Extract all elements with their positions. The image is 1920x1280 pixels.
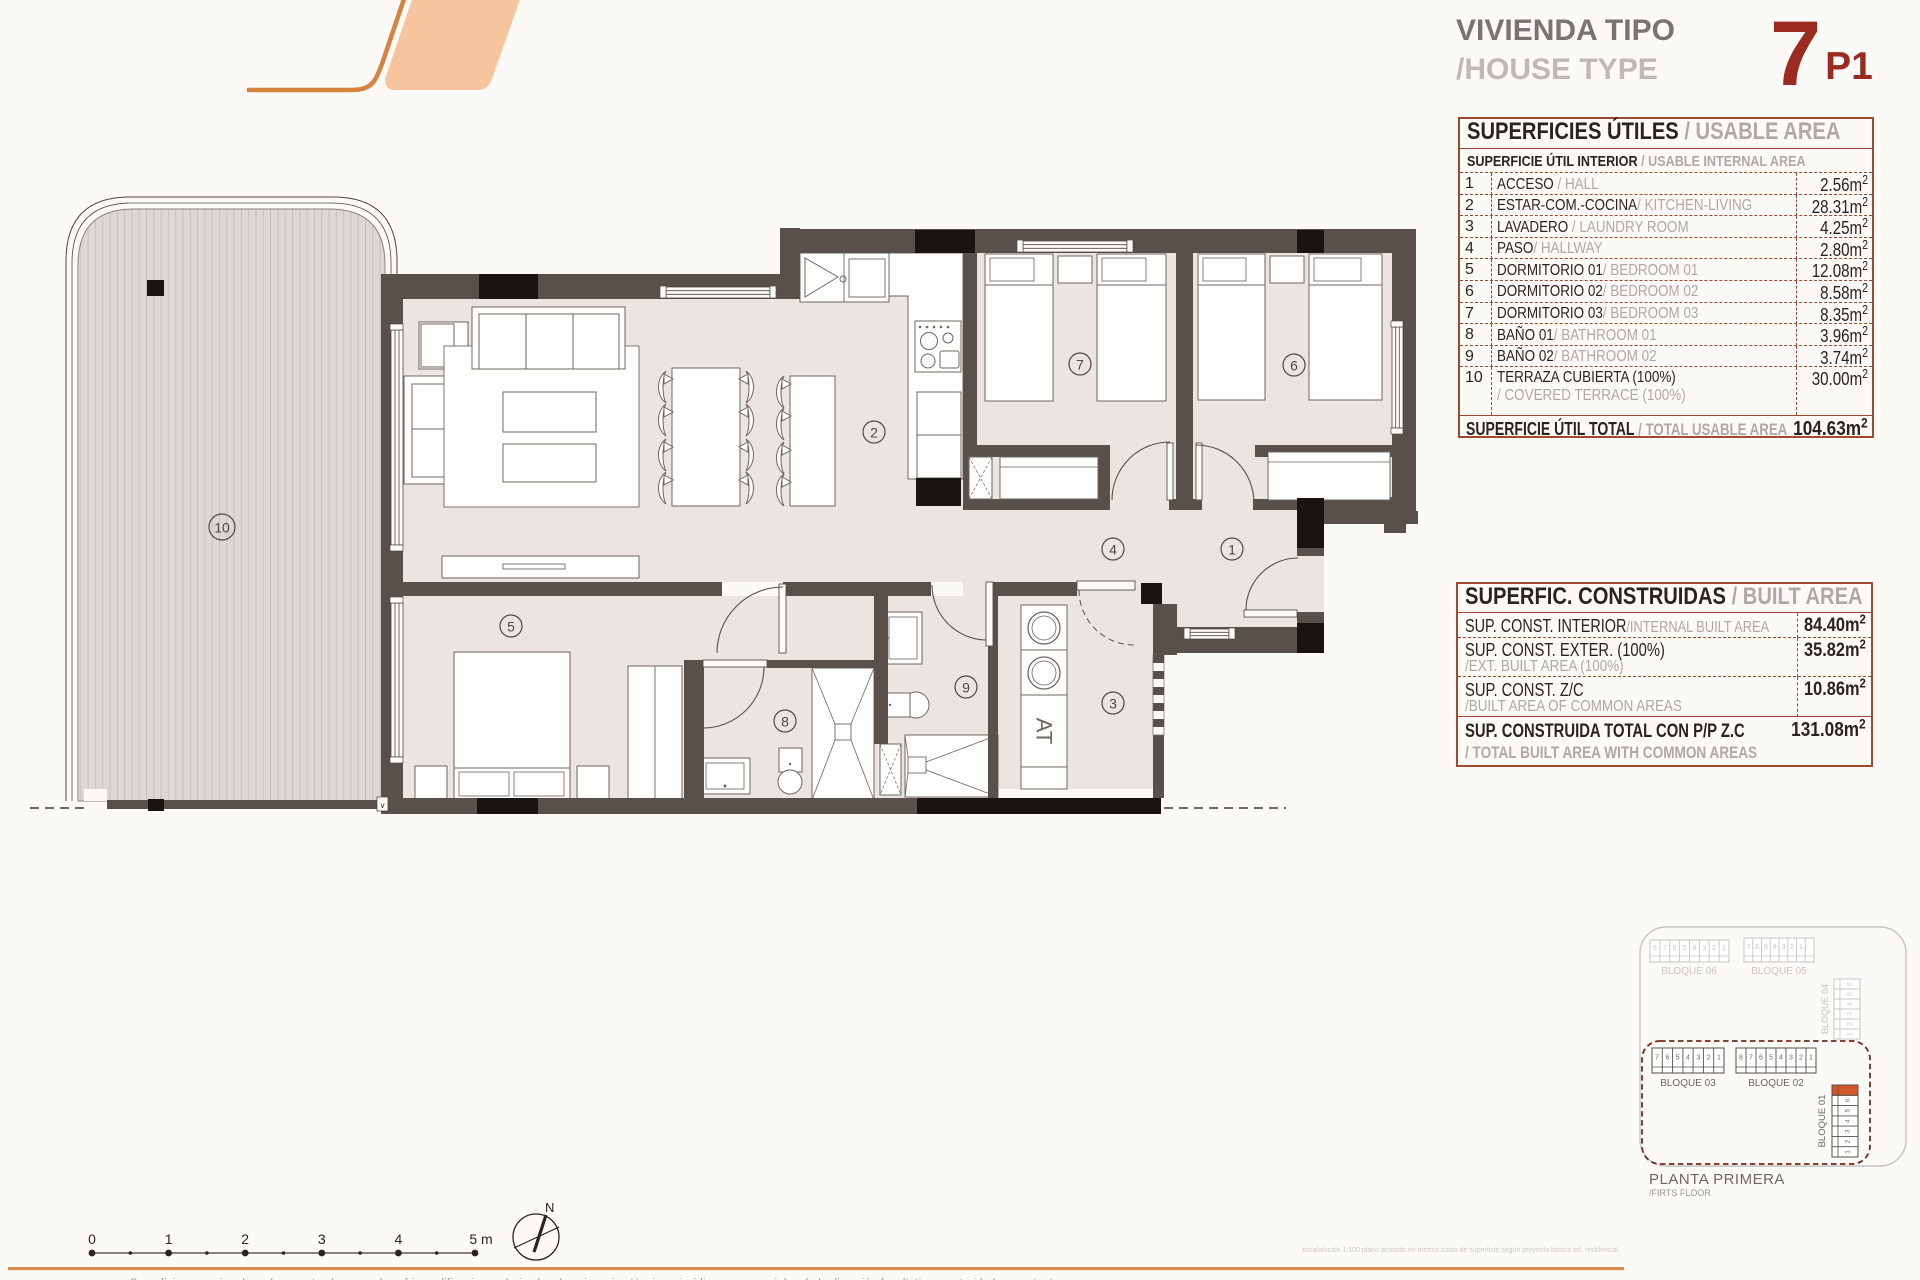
svg-text:6: 6 — [1755, 944, 1759, 951]
svg-text:2: 2 — [1845, 1139, 1852, 1143]
svg-text:3: 3 — [1789, 1055, 1793, 1062]
svg-text:6: 6 — [1665, 1055, 1669, 1062]
svg-text:10: 10 — [214, 520, 230, 536]
svg-text:/FIRTS FLOOR: /FIRTS FLOOR — [1649, 1188, 1711, 1198]
svg-text:4: 4 — [1773, 944, 1777, 951]
svg-text:5: 5 — [1764, 944, 1768, 951]
svg-text:2: 2 — [1799, 1055, 1803, 1062]
svg-text:BLOQUE 06: BLOQUE 06 — [1661, 966, 1717, 977]
svg-text:BLOQUE 01: BLOQUE 01 — [1817, 1095, 1828, 1148]
svg-text:5: 5 — [1676, 1055, 1680, 1062]
svg-text:1: 1 — [1228, 542, 1236, 558]
svg-text:3: 3 — [1109, 696, 1117, 712]
svg-text:4: 4 — [1109, 542, 1117, 558]
svg-text:7: 7 — [1663, 945, 1667, 952]
svg-text:1: 1 — [1845, 1150, 1852, 1154]
svg-text:BLOQUE 04: BLOQUE 04 — [1820, 984, 1830, 1034]
svg-text:6: 6 — [1759, 1055, 1763, 1062]
svg-text:2: 2 — [241, 1231, 249, 1247]
svg-text:BLOQUE 05: BLOQUE 05 — [1751, 966, 1807, 977]
svg-text:AT: AT — [1032, 718, 1057, 744]
svg-text:BLOQUE 03: BLOQUE 03 — [1660, 1078, 1716, 1089]
svg-text:5: 5 — [1769, 1055, 1773, 1062]
svg-text:5: 5 — [1847, 992, 1854, 996]
svg-text:PLANTA PRIMERA: PLANTA PRIMERA — [1649, 1171, 1785, 1188]
svg-text:1: 1 — [1722, 945, 1726, 952]
svg-text:9: 9 — [962, 680, 970, 696]
svg-text:2: 2 — [1712, 945, 1716, 952]
svg-text:3: 3 — [1702, 945, 1706, 952]
svg-text:0: 0 — [88, 1231, 96, 1247]
svg-text:1: 1 — [1809, 1055, 1813, 1062]
svg-text:5: 5 — [1845, 1109, 1852, 1113]
svg-text:5: 5 — [1683, 945, 1687, 952]
svg-text:2: 2 — [1790, 944, 1794, 951]
svg-text:3: 3 — [318, 1231, 326, 1247]
svg-text:8: 8 — [781, 714, 789, 730]
svg-text:2: 2 — [1847, 1022, 1854, 1026]
svg-text:2: 2 — [870, 425, 878, 441]
svg-text:7: 7 — [1749, 1055, 1753, 1062]
svg-text:escala/scale 1:100 plano acot: escala/scale 1:100 plano acotado en metr… — [1302, 1247, 1619, 1254]
svg-text:4: 4 — [1845, 1119, 1852, 1123]
svg-text:4: 4 — [1779, 1055, 1783, 1062]
svg-text:6: 6 — [1847, 982, 1854, 986]
svg-text:6: 6 — [1290, 358, 1298, 374]
svg-text:1: 1 — [1847, 1032, 1854, 1036]
svg-text:4: 4 — [1847, 1002, 1854, 1006]
svg-text:7: 7 — [1076, 357, 1084, 373]
svg-text:2: 2 — [1707, 1055, 1711, 1062]
svg-text:4: 4 — [1692, 945, 1696, 952]
svg-text:8: 8 — [1739, 1055, 1743, 1062]
svg-text:3: 3 — [1847, 1012, 1854, 1016]
svg-text:N: N — [545, 1200, 554, 1215]
svg-text:1: 1 — [1799, 944, 1803, 951]
svg-text:6: 6 — [1845, 1098, 1852, 1102]
svg-text:1: 1 — [1717, 1055, 1721, 1062]
svg-text:3: 3 — [1696, 1055, 1700, 1062]
svg-text:3: 3 — [1781, 944, 1785, 951]
svg-text:7: 7 — [1655, 1055, 1659, 1062]
svg-text:3: 3 — [1845, 1129, 1852, 1133]
svg-text:5: 5 — [507, 619, 515, 635]
svg-text:7: 7 — [1746, 944, 1750, 951]
svg-text:BLOQUE 02: BLOQUE 02 — [1748, 1078, 1804, 1089]
svg-text:5 m: 5 m — [469, 1231, 492, 1247]
svg-text:1: 1 — [165, 1231, 173, 1247]
svg-text:6: 6 — [1673, 945, 1677, 952]
svg-text:8: 8 — [1653, 945, 1657, 952]
svg-text:4: 4 — [1686, 1055, 1690, 1062]
svg-text:4: 4 — [395, 1231, 403, 1247]
svg-text:v: v — [381, 801, 385, 810]
